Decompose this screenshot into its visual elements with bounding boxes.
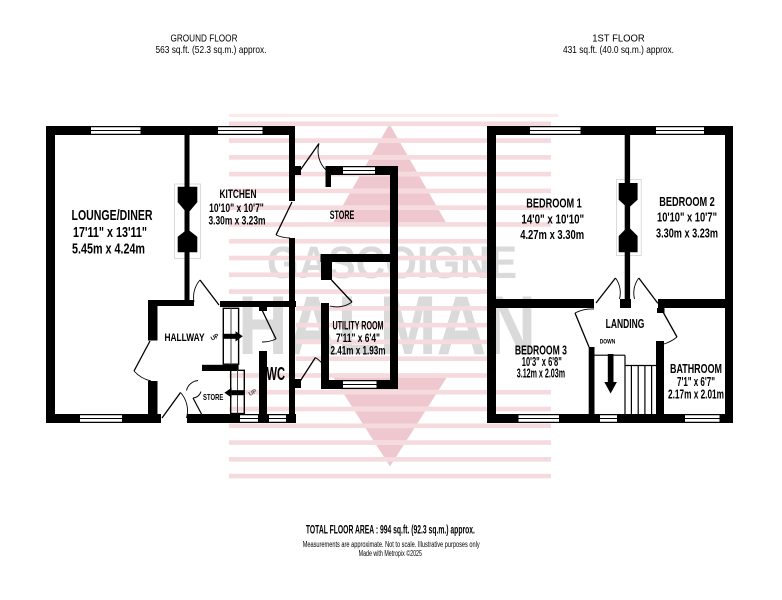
svg-text:10'10" x 10'7": 10'10" x 10'7"	[657, 210, 717, 225]
svg-text:LANDING: LANDING	[606, 317, 645, 331]
svg-text:5.45m x 4.24m: 5.45m x 4.24m	[72, 241, 145, 258]
svg-text:LOUNGE/DINER: LOUNGE/DINER	[72, 207, 153, 224]
svg-text:STORE: STORE	[203, 392, 224, 402]
svg-text:17'11" x 13'11": 17'11" x 13'11"	[73, 224, 147, 241]
svg-text:3.30m x 3.23m: 3.30m x 3.23m	[209, 214, 266, 228]
svg-text:HALLWAY: HALLWAY	[165, 332, 206, 344]
svg-text:BEDROOM 1: BEDROOM 1	[526, 196, 582, 211]
svg-text:WC: WC	[267, 363, 286, 384]
svg-text:431 sq.ft. (40.0 sq.m.) approx: 431 sq.ft. (40.0 sq.m.) approx.	[563, 44, 674, 56]
svg-text:4.27m x 3.30m: 4.27m x 3.30m	[520, 227, 584, 242]
svg-text:TOTAL FLOOR AREA : 994 sq.ft.: TOTAL FLOOR AREA : 994 sq.ft. (92.3 sq.m…	[306, 525, 475, 537]
svg-text:DOWN: DOWN	[600, 339, 616, 346]
svg-text:KITCHEN: KITCHEN	[220, 187, 257, 201]
svg-text:2.17m x 2.01m: 2.17m x 2.01m	[668, 387, 724, 402]
svg-text:1ST FLOOR: 1ST FLOOR	[592, 32, 645, 44]
svg-text:3.30m x 3.23m: 3.30m x 3.23m	[656, 225, 718, 240]
svg-text:GROUND FLOOR: GROUND FLOOR	[171, 32, 238, 44]
svg-text:STORE: STORE	[330, 208, 355, 222]
svg-text:14'0" x 10'10": 14'0" x 10'10"	[521, 211, 584, 226]
svg-text:BEDROOM 2: BEDROOM 2	[659, 194, 715, 209]
svg-text:563 sq.ft. (52.3 sq.m.) approx: 563 sq.ft. (52.3 sq.m.) approx.	[156, 44, 267, 56]
svg-text:3.12m x 2.03m: 3.12m x 2.03m	[517, 366, 565, 381]
svg-text:Measurements are approximate.: Measurements are approximate. Not to sca…	[303, 540, 480, 549]
svg-text:Made with Metropix ©2025: Made with Metropix ©2025	[359, 549, 423, 558]
svg-text:2.41m x 1.93m: 2.41m x 1.93m	[331, 344, 386, 358]
